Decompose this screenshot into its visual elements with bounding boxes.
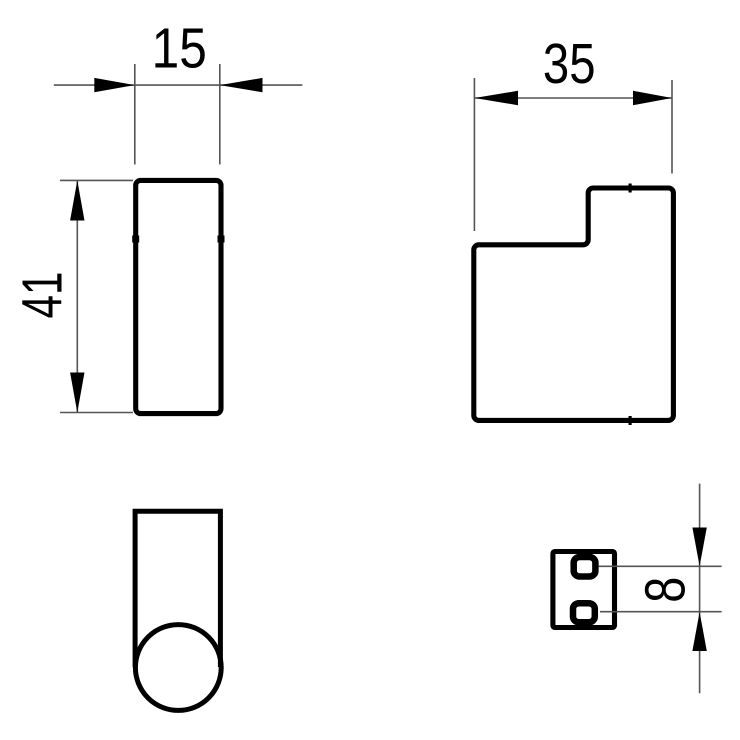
- svg-text:15: 15: [152, 17, 207, 80]
- svg-text:8: 8: [634, 577, 697, 603]
- svg-text:41: 41: [10, 272, 74, 319]
- svg-text:35: 35: [543, 33, 596, 96]
